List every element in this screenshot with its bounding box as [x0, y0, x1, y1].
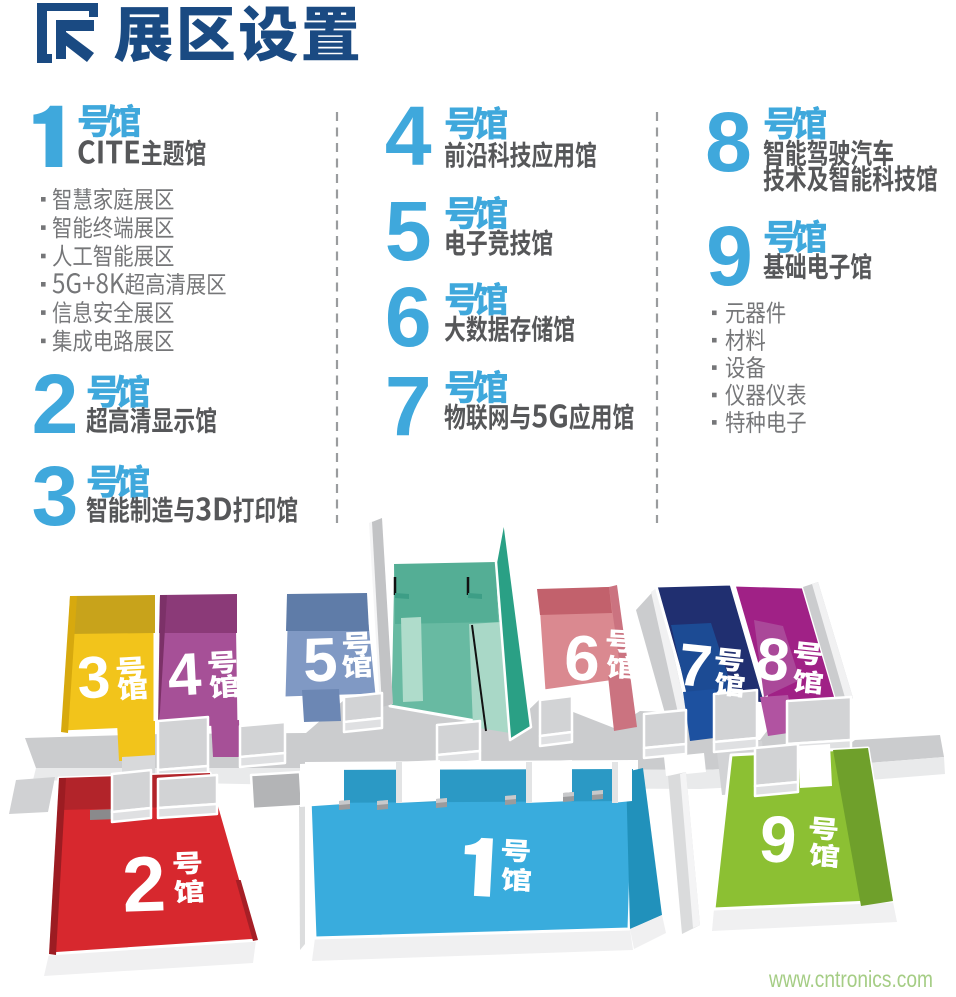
svg-text:8: 8 — [705, 95, 752, 189]
svg-text:5: 5 — [385, 184, 432, 278]
svg-text:8: 8 — [753, 625, 793, 695]
svg-text:9: 9 — [756, 801, 799, 878]
svg-text:3: 3 — [76, 644, 112, 712]
svg-text:7: 7 — [675, 631, 715, 701]
svg-text:9: 9 — [706, 209, 753, 303]
svg-text:3: 3 — [32, 449, 79, 543]
svg-text:www.cntronics.com: www.cntronics.com — [768, 966, 933, 992]
svg-text:7: 7 — [385, 359, 432, 453]
svg-text:5: 5 — [302, 625, 339, 695]
svg-text:6: 6 — [385, 270, 432, 364]
svg-text:2: 2 — [32, 357, 79, 451]
svg-text:2: 2 — [121, 839, 167, 928]
svg-text:6: 6 — [562, 621, 601, 695]
svg-text:4: 4 — [385, 89, 432, 183]
svg-text:4: 4 — [166, 640, 203, 709]
